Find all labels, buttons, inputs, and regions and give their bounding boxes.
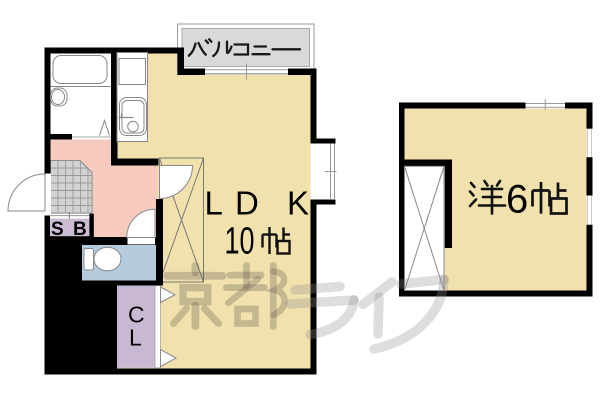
svg-text:K: K <box>287 184 309 221</box>
svg-text:10: 10 <box>225 221 255 263</box>
svg-text:L: L <box>205 184 223 221</box>
svg-text:D: D <box>235 184 259 221</box>
svg-text:B: B <box>73 219 87 240</box>
svg-text:6: 6 <box>506 178 528 222</box>
svg-text:S: S <box>51 219 64 240</box>
svg-text:L: L <box>129 325 142 351</box>
